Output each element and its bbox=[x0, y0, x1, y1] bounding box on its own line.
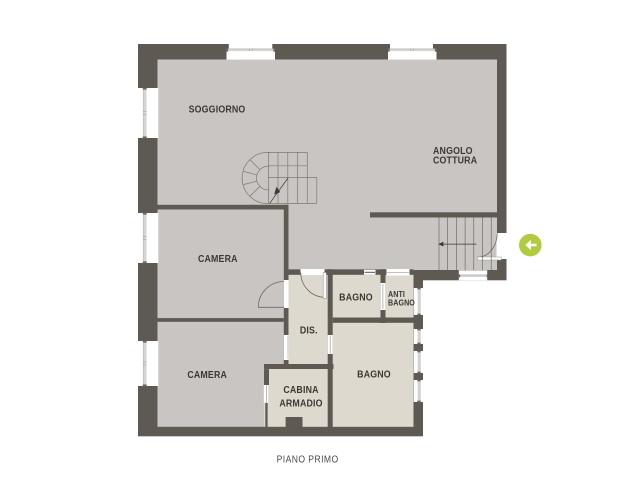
svg-text:BAGNO: BAGNO bbox=[357, 369, 391, 381]
svg-text:DIS.: DIS. bbox=[300, 325, 318, 337]
svg-text:PIANO PRIMO: PIANO PRIMO bbox=[277, 454, 339, 465]
svg-text:CAMERA: CAMERA bbox=[198, 253, 238, 265]
svg-text:COTTURA: COTTURA bbox=[433, 155, 477, 167]
svg-text:CAMERA: CAMERA bbox=[187, 369, 227, 381]
svg-text:BAGNO: BAGNO bbox=[388, 298, 415, 308]
svg-text:CABINA: CABINA bbox=[283, 384, 318, 396]
svg-text:BAGNO: BAGNO bbox=[339, 292, 373, 304]
svg-text:ARMADIO: ARMADIO bbox=[279, 398, 323, 410]
svg-text:SOGGIORNO: SOGGIORNO bbox=[189, 104, 246, 116]
